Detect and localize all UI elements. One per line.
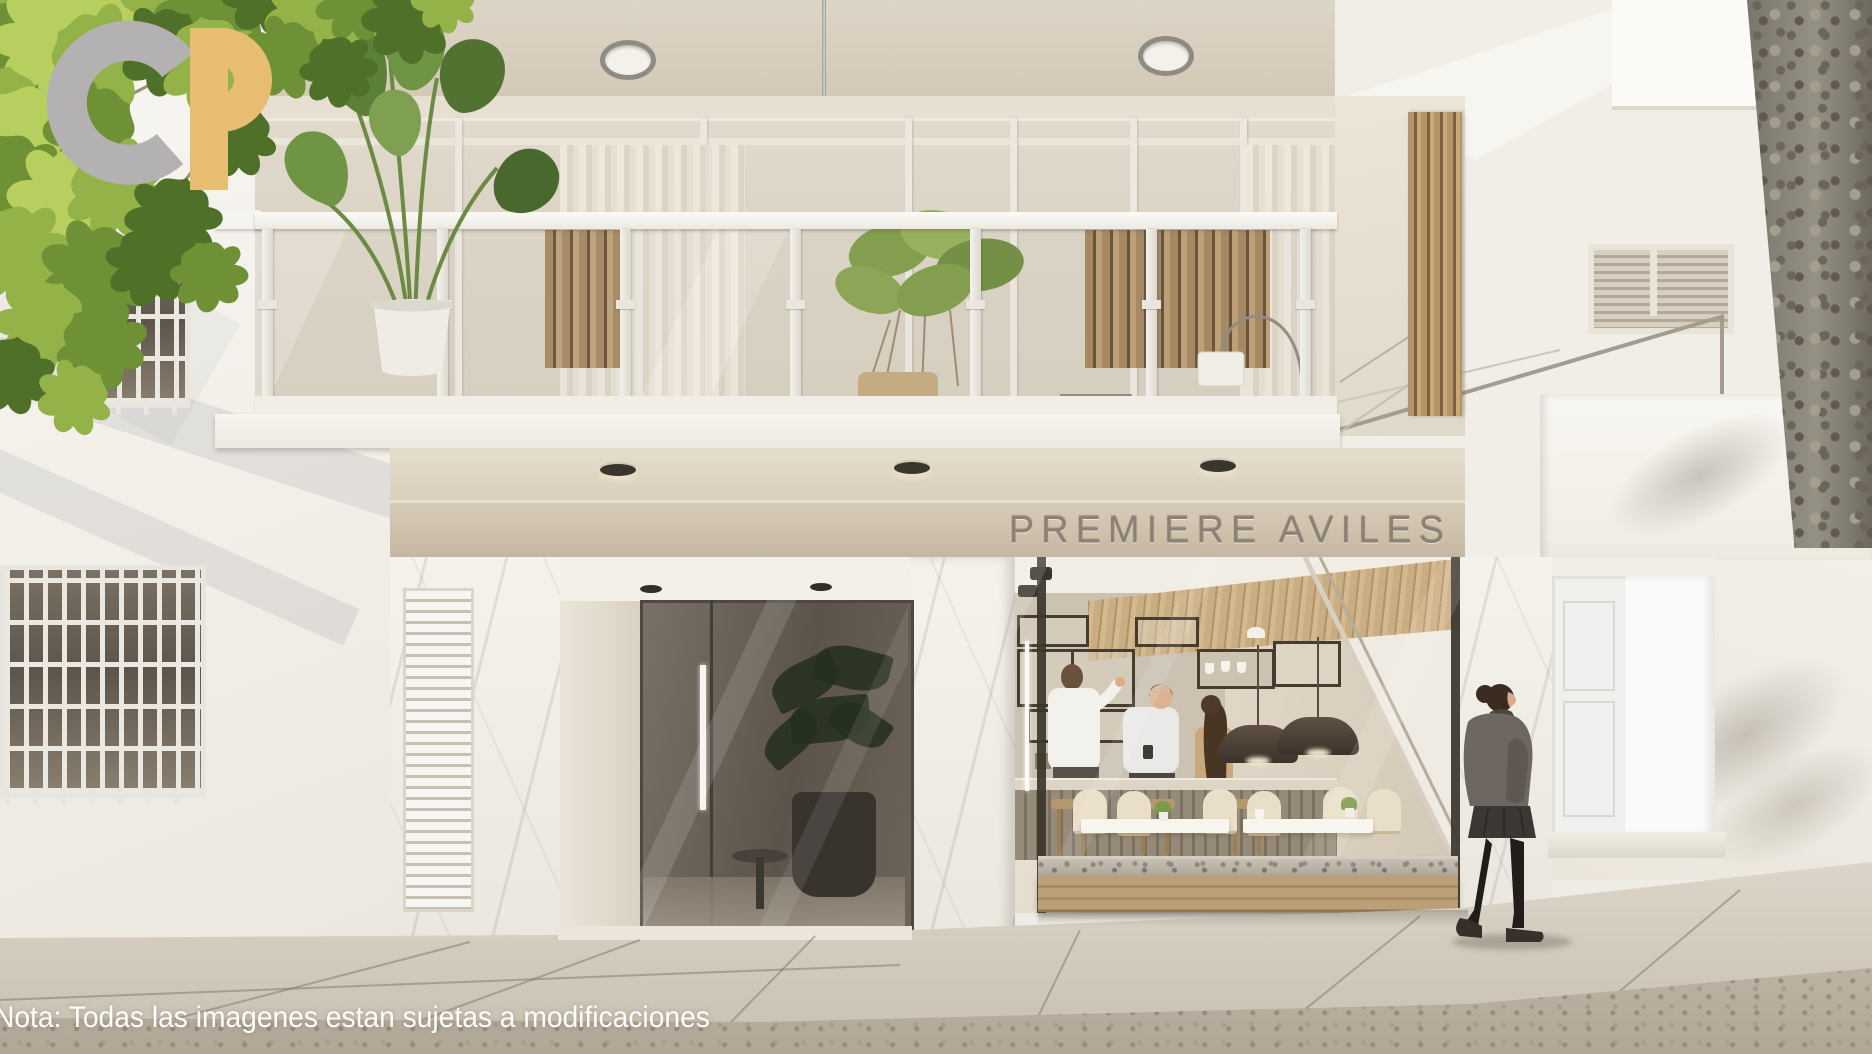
planter-shadow: [1038, 910, 1468, 926]
disclaimer-note: Nota: Todas las imagenes estan sujetas a…: [0, 1001, 710, 1035]
pedestrian-woman: [1430, 660, 1610, 960]
architectural-render: PREMIERE AVILES: [0, 0, 1872, 1054]
logo-g-icon: [67, 41, 178, 165]
gp-logo: [24, 0, 314, 210]
logo-p-icon: [209, 28, 253, 190]
